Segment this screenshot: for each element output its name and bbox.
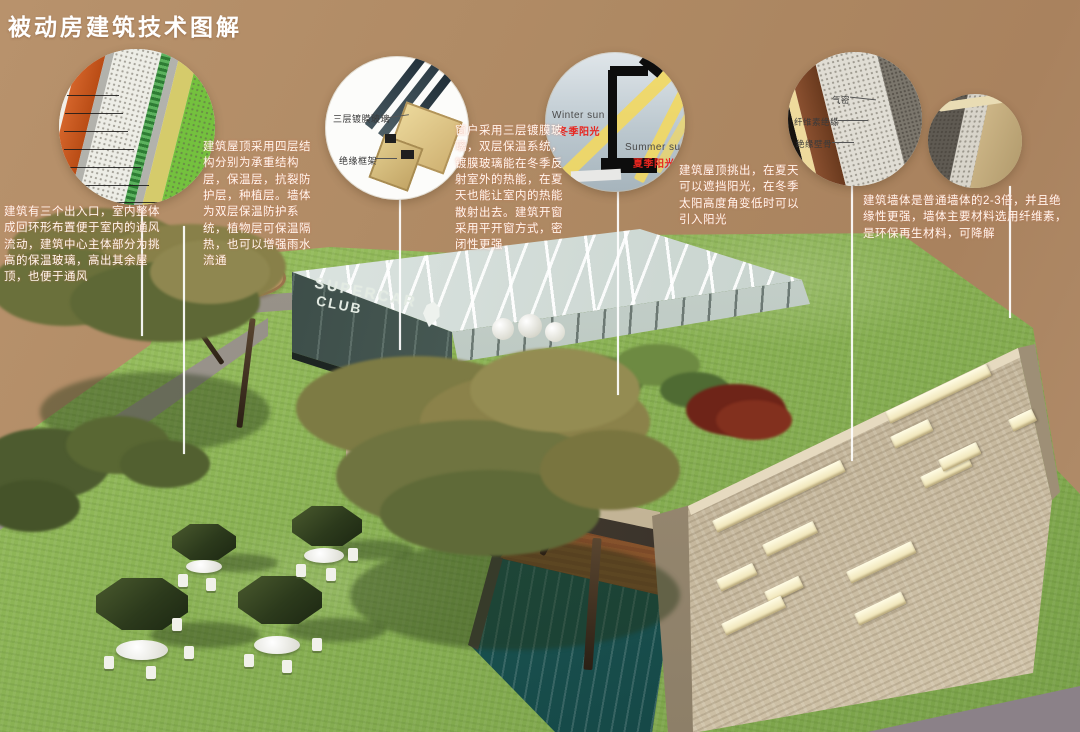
tree-foliage [470, 348, 640, 432]
page-title: 被动房建筑技术图解 [8, 8, 242, 42]
leader-line-window [399, 198, 401, 350]
layer-pointer-line [67, 95, 119, 96]
floor-slab [571, 169, 622, 183]
frame-hardware [401, 150, 414, 159]
chair [146, 666, 156, 679]
table [116, 640, 168, 660]
interior-sphere [492, 318, 514, 340]
chair [172, 618, 182, 631]
callout-roof-layers [59, 49, 215, 205]
label-insulated-frame: 绝缘框架 [339, 154, 377, 167]
label-line [832, 142, 854, 143]
table [186, 560, 222, 573]
chair [104, 656, 114, 669]
summer-sun-label-zh: 夏季阳光 [633, 155, 675, 170]
chair [184, 646, 194, 659]
passive-house-infographic: SUPERCAR CLUB [0, 0, 1080, 732]
summer-sun-label-en: Summer sun [625, 142, 685, 153]
leader-line-roof2 [183, 226, 185, 454]
leader-line-sun [617, 190, 619, 395]
note-shading: 建筑屋顶挑出，在夏天可以遮挡阳光，在冬季太阳高度角变低时可以引入阳光 [679, 163, 799, 228]
leader-line-wall [851, 183, 853, 461]
layer-pointer-line [67, 185, 149, 186]
interior-sphere [518, 314, 542, 338]
table [304, 548, 344, 563]
note-window: 窗户采用三层镀膜玻璃，双层保温系统，镀膜玻璃能在冬季反射室外的热能，在夏天也能让… [455, 123, 567, 254]
layer-pointer-line [71, 202, 159, 203]
wall-mullion [608, 70, 617, 162]
interior-sphere [545, 322, 565, 342]
bush [120, 440, 210, 488]
chair [326, 568, 336, 581]
callout-window-section: 三层镀膜玻璃 绝缘框架 [325, 56, 469, 200]
layer-pointer-line [65, 113, 123, 114]
winter-sun-label-en: Winter sun [552, 110, 605, 121]
chair [348, 548, 358, 561]
callout-wall-corner [928, 94, 1022, 188]
red-shrub [716, 400, 792, 440]
label-airtight: 气密 [832, 94, 850, 106]
label-line [838, 120, 868, 121]
chair [282, 660, 292, 673]
table [254, 636, 300, 654]
note-roof: 建筑屋顶采用四层结构分别为承重结构层，保温层，抗裂防护层，种植层。墙体为双层保温… [203, 139, 317, 270]
chair [244, 654, 254, 667]
chair [178, 574, 188, 587]
frame-hardware [385, 134, 396, 143]
chair [296, 564, 306, 577]
label-triple-glass: 三层镀膜玻璃 [333, 112, 390, 125]
layer-pointer-line [64, 149, 134, 150]
callout-wall-layers: 气密 纤维素绝缘 绝缘壁骨 [788, 52, 922, 186]
roof-layer-stack [59, 49, 215, 205]
layer-pointer-line [64, 131, 128, 132]
roof-overhang [610, 66, 648, 76]
note-entrances: 建筑有三个出入口，室内整体成回环形布置便于室内的通风流动，建筑中心主体部分为挑高… [4, 204, 168, 286]
label-stud: 绝缘壁骨 [796, 138, 832, 150]
chair [312, 638, 322, 651]
tree-foliage [540, 430, 680, 510]
label-line [375, 158, 397, 159]
label-cellulose: 纤维素绝缘 [794, 116, 839, 128]
chair [206, 578, 216, 591]
note-wall: 建筑墙体是普通墙体的2-3倍，并且绝缘性更强，墙体主要材料选用纤维素，是环保再生… [863, 193, 1071, 242]
layer-pointer-line [65, 167, 141, 168]
